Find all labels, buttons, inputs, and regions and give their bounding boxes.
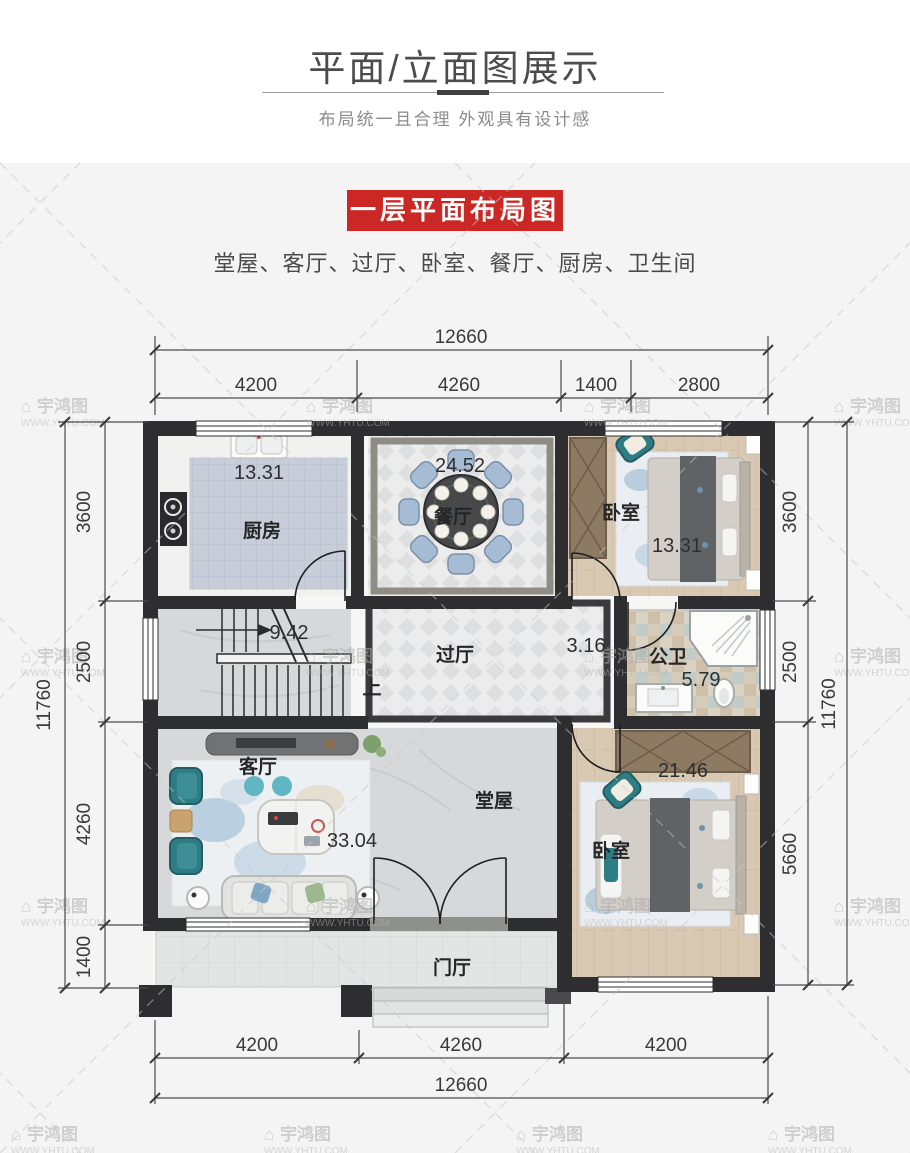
watermark-url: WWW.YHTU.COM	[584, 918, 668, 929]
watermark-brand: 宇鸿图	[532, 1124, 583, 1144]
kitchen-label: 厨房	[243, 519, 281, 542]
watermark-brand: 宇鸿图	[27, 1124, 78, 1144]
watermark-url: WWW.YHTU.COM	[306, 418, 390, 429]
dim-left-2: 2500	[74, 641, 95, 683]
watermark-house-icon: ⌂	[264, 1125, 274, 1144]
watermark-house-icon: ⌂	[11, 1125, 21, 1144]
nightstand-top-2	[746, 570, 761, 590]
page: 平面/立面图展示 布局统一且合理 外观具有设计感 一层平面布局图 堂屋、客厅、过…	[0, 0, 910, 1153]
foyer-floor	[156, 931, 560, 987]
bathroom-label: 公卫	[649, 646, 687, 668]
foyer-label: 门厅	[433, 956, 471, 979]
watermark-house-icon: ⌂	[306, 647, 316, 666]
watermark-brand: 宇鸿图	[784, 1124, 835, 1144]
dining-area: 24.52	[435, 455, 485, 477]
watermark-brand: 宇鸿图	[322, 396, 373, 416]
window-bathroom-right	[760, 610, 775, 690]
watermark-brand: 宇鸿图	[280, 1124, 331, 1144]
hallway-area: 3.16	[567, 635, 606, 657]
watermark-brand: 宇鸿图	[600, 646, 651, 666]
stairs-up-label: 上	[362, 677, 381, 699]
watermark-url: WWW.YHTU.COM	[834, 668, 910, 679]
window-bedroom-bottom	[598, 977, 713, 992]
watermark-house-icon: ⌂	[834, 397, 844, 416]
nightstand-bottom-2	[744, 914, 759, 934]
dim-top-4: 2800	[678, 375, 720, 396]
watermark-url: WWW.YHTU.COM	[306, 918, 390, 929]
watermark-house-icon: ⌂	[306, 397, 316, 416]
watermark-url: WWW.YHTU.COM	[584, 668, 668, 679]
watermark-house-icon: ⌂	[21, 397, 31, 416]
watermark-logo: ⌂宇鸿图WWW.YHTU.COM	[516, 1124, 600, 1153]
coffee-table	[258, 800, 334, 854]
watermark-house-icon: ⌂	[834, 897, 844, 916]
dim-right-1: 3600	[780, 491, 801, 533]
watermark-house-icon: ⌂	[584, 397, 594, 416]
bed-top	[648, 456, 750, 582]
watermark-url: WWW.YHTU.COM	[21, 918, 105, 929]
watermark-logo: ⌂宇鸿图WWW.YHTU.COM	[11, 1124, 95, 1153]
window-living-bottom	[186, 918, 310, 931]
dim-left-1: 3600	[74, 491, 95, 533]
watermark-house-icon: ⌂	[306, 897, 316, 916]
dim-bottom-2: 4260	[440, 1035, 482, 1056]
watermark-brand: 宇鸿图	[600, 896, 651, 916]
dim-top-3: 1400	[575, 375, 617, 396]
watermark-brand: 宇鸿图	[322, 896, 373, 916]
watermark-brand: 宇鸿图	[850, 396, 901, 416]
watermark-logo: ⌂宇鸿图WWW.YHTU.COM	[584, 396, 668, 429]
watermark-logo: ⌂宇鸿图WWW.YHTU.COM	[768, 1124, 852, 1153]
watermark-logo: ⌂宇鸿图WWW.YHTU.COM	[834, 896, 910, 929]
dim-right-3: 5660	[780, 833, 801, 875]
watermark-logo: ⌂宇鸿图WWW.YHTU.COM	[834, 646, 910, 679]
watermark-logo: ⌂宇鸿图WWW.YHTU.COM	[264, 1124, 348, 1153]
bedroom-top-label: 卧室	[602, 501, 640, 524]
dim-right-total: 11760	[819, 678, 840, 729]
nightstand-bottom-1	[744, 774, 759, 794]
watermark-url: WWW.YHTU.COM	[768, 1146, 852, 1153]
dim-left-4: 1400	[74, 936, 95, 978]
bedroom-top-area: 13.31	[652, 535, 702, 557]
dim-top-1: 4200	[235, 375, 277, 396]
nightstand-top-1	[746, 434, 761, 454]
watermark-brand: 宇鸿图	[850, 646, 901, 666]
bedroom-bottom-area: 21.46	[658, 760, 708, 782]
watermark-url: WWW.YHTU.COM	[516, 1146, 600, 1153]
watermark-house-icon: ⌂	[21, 647, 31, 666]
stove	[160, 492, 187, 546]
watermark-url: WWW.YHTU.COM	[11, 1146, 95, 1153]
watermark-url: WWW.YHTU.COM	[834, 918, 910, 929]
watermark-house-icon: ⌂	[516, 1125, 526, 1144]
porch-pillar-mid	[341, 985, 372, 1017]
dim-left-total: 11760	[34, 679, 55, 730]
stairs-area: 9.42	[270, 622, 309, 644]
hallway-floor	[369, 603, 607, 719]
kitchen-area: 13.31	[234, 462, 284, 484]
wardrobe-top	[570, 438, 606, 558]
living-label: 客厅	[239, 755, 277, 778]
dim-right-2: 2500	[780, 641, 801, 683]
window-kitchen-top	[196, 421, 312, 436]
hall-label: 堂屋	[475, 790, 513, 812]
bathroom-area: 5.79	[682, 669, 721, 691]
bedroom-bottom-label: 卧室	[592, 839, 630, 862]
dim-bottom-3: 4200	[645, 1035, 687, 1056]
watermark-house-icon: ⌂	[834, 647, 844, 666]
watermark-url: WWW.YHTU.COM	[264, 1146, 348, 1153]
dim-bottom-1: 4200	[236, 1035, 278, 1056]
watermark-house-icon: ⌂	[584, 897, 594, 916]
watermark-house-icon: ⌂	[21, 897, 31, 916]
hallway-label: 过厅	[436, 644, 474, 666]
dim-top-2: 4260	[438, 375, 480, 396]
watermark-brand: 宇鸿图	[37, 896, 88, 916]
dining-label: 餐厅	[434, 505, 472, 528]
watermark-brand: 宇鸿图	[37, 396, 88, 416]
watermark-house-icon: ⌂	[768, 1125, 778, 1144]
hall-area: 33.04	[327, 830, 377, 852]
watermark-url: WWW.YHTU.COM	[584, 418, 668, 429]
watermark-brand: 宇鸿图	[850, 896, 901, 916]
floor-plan: ⌂宇鸿图WWW.YHTU.COM⌂宇鸿图WWW.YHTU.COM⌂宇鸿图WWW.…	[0, 0, 910, 1153]
porch-pillar-left	[139, 985, 172, 1017]
entry-threshold	[370, 917, 508, 931]
dim-left-3: 4260	[74, 803, 95, 845]
watermark-logo: ⌂宇鸿图WWW.YHTU.COM	[21, 896, 105, 929]
window-stair-left	[143, 618, 158, 700]
dim-bottom-total: 12660	[435, 1075, 488, 1096]
dim-top-total: 12660	[435, 327, 488, 348]
watermark-brand: 宇鸿图	[600, 396, 651, 416]
entry-steps	[373, 988, 548, 1027]
watermark-brand: 宇鸿图	[322, 646, 373, 666]
watermark-logo: ⌂宇鸿图WWW.YHTU.COM	[306, 396, 390, 429]
